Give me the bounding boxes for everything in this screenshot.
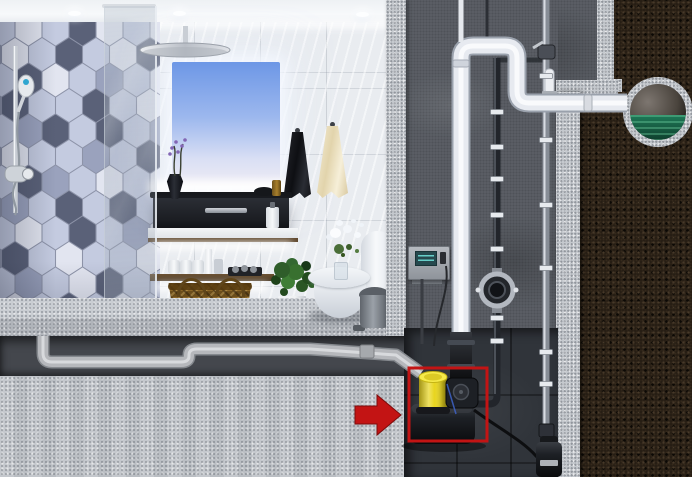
potted-plant [274, 262, 290, 278]
wall-edge-granite [556, 92, 580, 477]
shelf-led-glow [154, 242, 292, 250]
mirror [172, 62, 280, 186]
candle [205, 249, 212, 274]
decor-stone [250, 266, 257, 273]
ceiling-light [68, 11, 81, 16]
towel-roll [180, 260, 192, 274]
cabinet-handle [205, 208, 247, 213]
dispenser-pump-top [270, 202, 275, 208]
control-panel [408, 246, 450, 280]
toilet-flowers-greens [334, 244, 344, 254]
glass-partition [104, 6, 157, 316]
pump-niche [404, 328, 558, 477]
towel-roll [168, 260, 180, 274]
pipe-chase [0, 336, 418, 378]
foundation-slab [0, 376, 406, 477]
pedal-trash-can [360, 295, 389, 328]
flower-vase-glass [334, 262, 348, 280]
control-panel-screen [415, 251, 437, 266]
cove-light-glow [130, 19, 392, 28]
control-panel-port [440, 252, 446, 264]
wall-edge-granite [386, 0, 406, 336]
soap-bottle [272, 180, 281, 196]
jar [214, 259, 223, 274]
ceiling-light [173, 11, 186, 16]
scene [0, 0, 692, 477]
sewer-water [630, 115, 686, 140]
towel-roll [192, 260, 204, 274]
black-bowl [254, 187, 274, 196]
decor-stone [232, 266, 239, 273]
ceiling-light [356, 12, 369, 17]
decor-stone [241, 265, 248, 272]
soap-dispenser [266, 207, 279, 228]
sewer-main-interior [630, 84, 686, 140]
toilet-flowers [330, 228, 341, 238]
